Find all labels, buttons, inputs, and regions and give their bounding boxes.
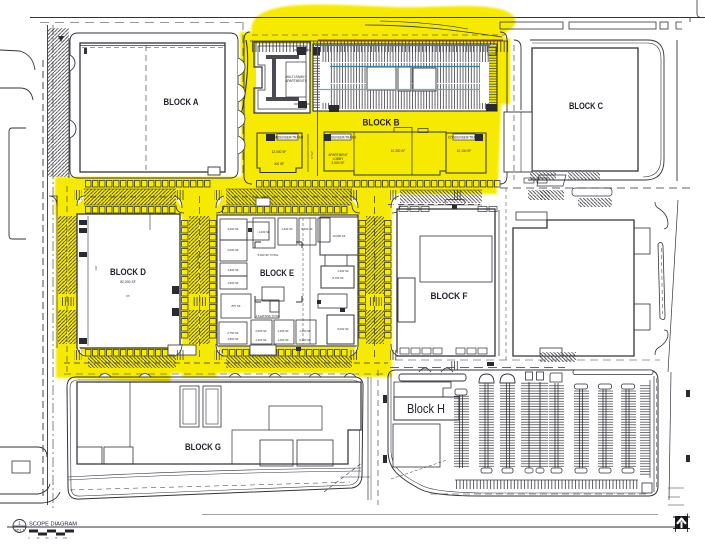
- svg-text:N. STREET: N. STREET: [373, 254, 377, 270]
- svg-text:100: 100: [63, 537, 68, 540]
- svg-text:1,400 SF: 1,400 SF: [258, 230, 270, 234]
- svg-text:APARTMENTS: APARTMENTS: [285, 79, 307, 83]
- svg-text:75: 75: [55, 537, 58, 540]
- svg-text:1,400 SF: 1,400 SF: [255, 338, 267, 342]
- svg-text:1,500 SF: 1,500 SF: [227, 281, 239, 285]
- svg-text:SCOPE DIAGRAM: SCOPE DIAGRAM: [29, 522, 77, 528]
- svg-text:5,200 SF: 5,200 SF: [299, 338, 311, 342]
- svg-text:CONDENSER/TRASH: CONDENSER/TRASH: [271, 136, 304, 140]
- svg-text:1,400 SF: 1,400 SF: [277, 338, 289, 342]
- svg-text:10,300 SF: 10,300 SF: [391, 149, 406, 153]
- svg-text:2,000 SF: 2,000 SF: [255, 329, 267, 333]
- svg-text:0: 0: [28, 537, 30, 540]
- svg-text:8,750 SF: 8,750 SF: [332, 276, 344, 280]
- svg-text:10,000 SF: 10,000 SF: [333, 234, 346, 238]
- svg-text:870 SF: 870 SF: [231, 304, 240, 308]
- svg-text:BLOCK A: BLOCK A: [164, 97, 199, 108]
- svg-text:12,000 SF: 12,000 SF: [272, 150, 287, 154]
- svg-text:1,400 SF: 1,400 SF: [281, 227, 293, 231]
- svg-text:340': 340': [94, 265, 98, 271]
- svg-text:BLOCK D: BLOCK D: [110, 267, 146, 278]
- svg-text:1,800 SF: 1,800 SF: [227, 337, 239, 341]
- svg-text:10,100 SF: 10,100 SF: [457, 149, 472, 153]
- svg-text:5,200 SF: 5,200 SF: [301, 227, 313, 231]
- svg-text:2,000 SF: 2,000 SF: [227, 248, 239, 252]
- svg-text:5,400 SF TOTAL: 5,400 SF TOTAL: [258, 253, 279, 257]
- svg-text:1,500 SF: 1,500 SF: [227, 268, 239, 272]
- svg-text:CONDENSER/TRASH: CONDENSER/TRASH: [324, 136, 357, 140]
- svg-text:N. STREET: N. STREET: [196, 252, 200, 268]
- svg-text:2,750 SF: 2,750 SF: [227, 331, 239, 335]
- svg-text:4 FLATS/SF TOTAL: 4 FLATS/SF TOTAL: [256, 314, 281, 318]
- svg-text:5,000 SF: 5,000 SF: [337, 327, 349, 331]
- svg-text:1,400 SF: 1,400 SF: [337, 269, 349, 273]
- svg-text:Block H: Block H: [407, 402, 445, 416]
- svg-text:BLOCK G: BLOCK G: [185, 442, 221, 453]
- svg-text:50: 50: [46, 537, 49, 540]
- svg-text:400 SF: 400 SF: [274, 162, 284, 166]
- svg-text:SD1.1: SD1.1: [15, 529, 25, 533]
- svg-text:1,400 SF: 1,400 SF: [299, 329, 311, 333]
- svg-text:STEP: STEP: [310, 151, 314, 159]
- svg-text:CONDENSER/TRASH: CONDENSER/TRASH: [448, 136, 481, 140]
- svg-text:2,000 SF: 2,000 SF: [332, 161, 345, 165]
- svg-text:82,000 SF: 82,000 SF: [120, 280, 136, 284]
- svg-text:3,200 SF: 3,200 SF: [227, 227, 239, 231]
- svg-text:BLOCK E: BLOCK E: [260, 268, 294, 279]
- svg-text:25: 25: [37, 537, 40, 540]
- svg-text:BLOCK C: BLOCK C: [569, 101, 603, 112]
- svg-text:BLOCK B: BLOCK B: [363, 118, 400, 129]
- svg-text:86': 86': [126, 294, 130, 298]
- svg-text:1,400 SF: 1,400 SF: [277, 329, 289, 333]
- svg-text:1: 1: [18, 521, 21, 526]
- svg-text:BLOCK F: BLOCK F: [431, 291, 468, 302]
